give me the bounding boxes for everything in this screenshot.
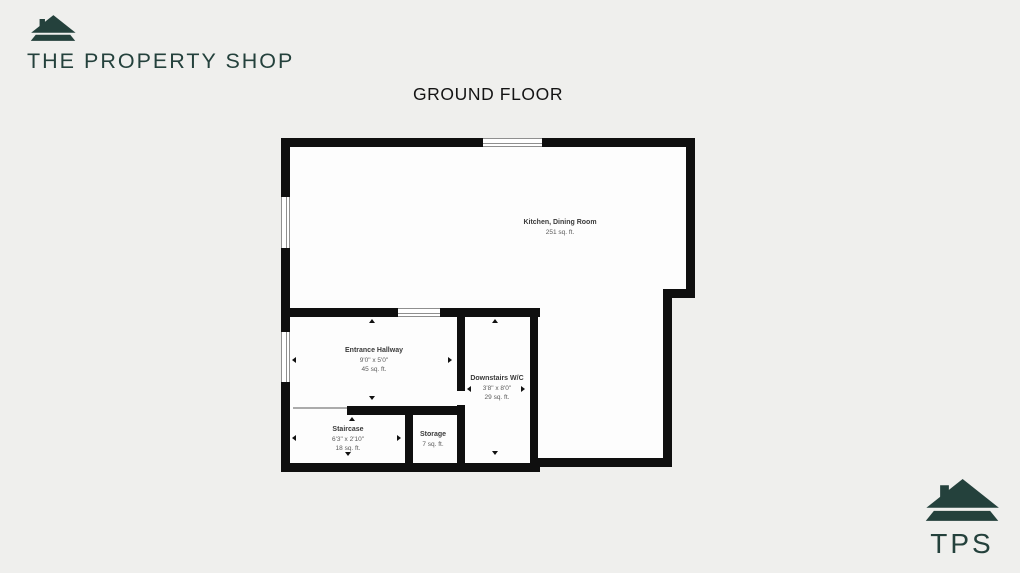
wall-bottom-right: [530, 458, 672, 467]
room-label-kitchen-dining: Kitchen, Dining Room 251 sq. ft.: [480, 218, 640, 237]
house-icon: [924, 479, 1000, 529]
dimension-arrow: [492, 451, 498, 455]
room-label-entrance-hallway: Entrance Hallway 9'0" x 5'0" 45 sq. ft.: [304, 346, 444, 374]
dimension-arrow: [349, 417, 355, 421]
wall-left: [281, 138, 290, 472]
floor-title: GROUND FLOOR: [281, 84, 695, 105]
staircase-open-edge: [293, 407, 347, 409]
window-left-wall-upper: [281, 197, 290, 248]
house-icon: [30, 15, 76, 46]
footer-logo: TPS: [922, 479, 1002, 561]
dimension-arrow: [369, 396, 375, 400]
dimension-arrow: [369, 319, 375, 323]
brand-abbreviation: TPS: [922, 528, 1002, 560]
window-top-wall: [483, 138, 542, 147]
room-name: Entrance Hallway: [304, 346, 444, 356]
dimension-arrow: [448, 357, 452, 363]
room-name: Storage: [393, 430, 473, 440]
dimension-arrow: [492, 319, 498, 323]
wall-staircase-top: [347, 406, 457, 415]
wall-bottom-left: [281, 463, 540, 472]
room-area: 45 sq. ft.: [304, 365, 444, 374]
room-name: Staircase: [288, 425, 408, 435]
room-label-downstairs-wc: Downstairs W/C 3'8" x 8'0" 29 sq. ft.: [447, 374, 547, 402]
header-logo: THE PROPERTY SHOP: [27, 12, 327, 67]
room-dimensions: 3'8" x 8'0": [447, 384, 547, 393]
wall-right-lower: [663, 289, 672, 467]
window-hallway-wall: [398, 308, 440, 317]
room-name: Kitchen, Dining Room: [480, 218, 640, 228]
room-dimensions: 9'0" x 5'0": [304, 356, 444, 365]
room-area: 251 sq. ft.: [480, 228, 640, 237]
dimension-arrow: [292, 357, 296, 363]
room-fill-lower-right: [540, 297, 672, 467]
room-label-storage: Storage 7 sq. ft.: [393, 430, 473, 449]
room-dimensions: 6'3" x 2'10": [288, 435, 408, 444]
window-left-wall-lower: [281, 332, 290, 382]
room-area: 7 sq. ft.: [393, 440, 473, 449]
room-area: 29 sq. ft.: [447, 393, 547, 402]
wall-right-upper: [686, 138, 695, 298]
room-name: Downstairs W/C: [447, 374, 547, 384]
brand-name: THE PROPERTY SHOP: [27, 49, 294, 74]
floorplan: Kitchen, Dining Room 251 sq. ft. Entranc…: [281, 138, 695, 472]
room-area: 18 sq. ft.: [288, 444, 408, 453]
room-label-staircase: Staircase 6'3" x 2'10" 18 sq. ft.: [288, 425, 408, 453]
